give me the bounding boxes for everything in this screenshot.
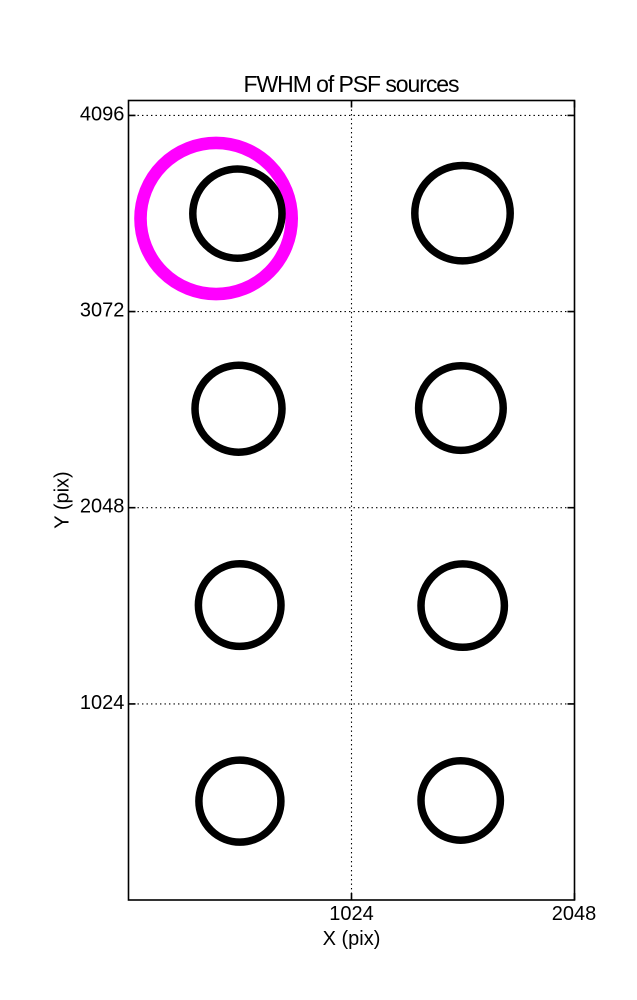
svg-text:4096: 4096 xyxy=(80,103,125,125)
svg-text:Y (pix): Y (pix) xyxy=(52,471,74,528)
svg-text:X (pix): X (pix) xyxy=(323,928,381,950)
svg-text:2048: 2048 xyxy=(80,496,125,518)
svg-text:1024: 1024 xyxy=(329,903,374,925)
svg-text:3072: 3072 xyxy=(80,300,125,322)
svg-text:FWHM of PSF sources: FWHM of PSF sources xyxy=(244,71,460,97)
svg-text:1024: 1024 xyxy=(80,692,125,714)
svg-text:2048: 2048 xyxy=(552,903,597,925)
